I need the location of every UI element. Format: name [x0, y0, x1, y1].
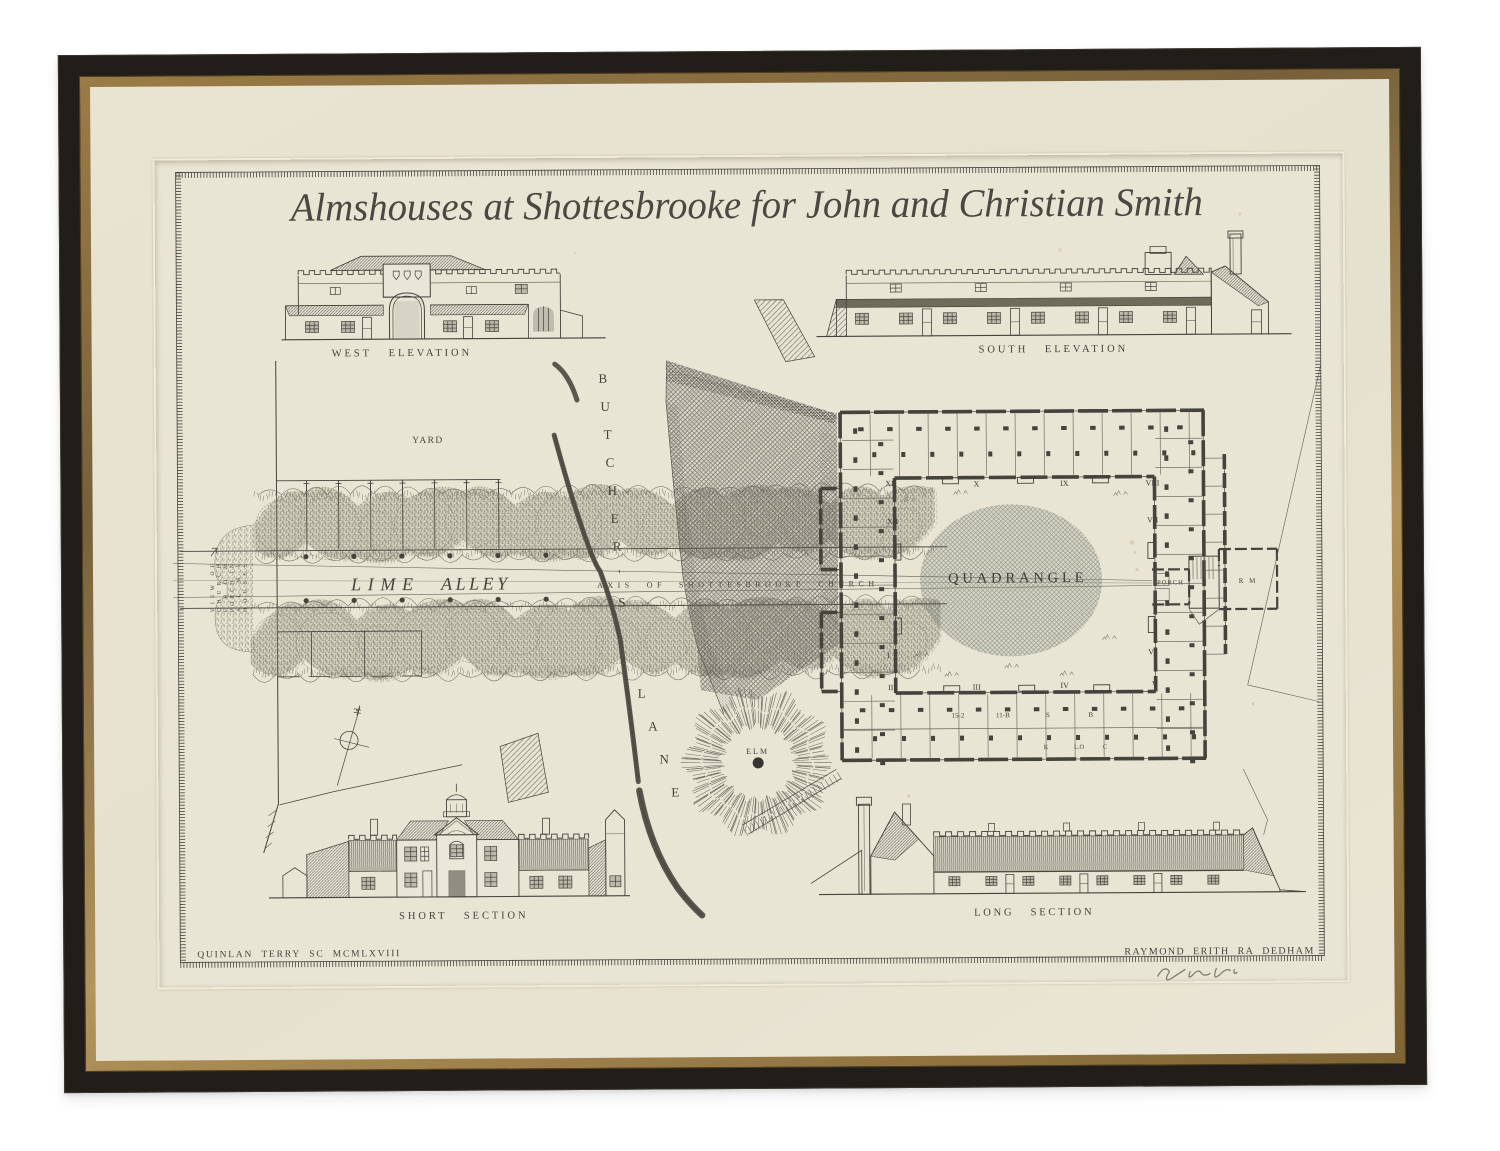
- svg-text:S: S: [618, 595, 625, 610]
- svg-text:IX: IX: [1060, 479, 1069, 488]
- svg-text:WEST ELEVATION: WEST ELEVATION: [332, 348, 474, 360]
- svg-text:ALLEY: ALLEY: [440, 573, 509, 593]
- svg-text:C: C: [1103, 744, 1107, 751]
- svg-text:': ': [618, 567, 620, 582]
- svg-text:ELM: ELM: [746, 747, 770, 756]
- svg-text:XI: XI: [885, 479, 894, 488]
- svg-text:L: L: [638, 686, 646, 701]
- svg-text:E: E: [671, 784, 679, 799]
- svg-text:H: H: [608, 483, 617, 498]
- svg-text:B: B: [598, 371, 607, 386]
- svg-text:LONG SECTION: LONG SECTION: [974, 907, 1096, 919]
- svg-text:III: III: [973, 683, 981, 692]
- svg-text:R M: R M: [1239, 577, 1258, 585]
- svg-text:11-B: 11-B: [996, 711, 1010, 719]
- svg-text:QUADRANGLE: QUADRANGLE: [948, 570, 1089, 587]
- svg-text:YARD: YARD: [412, 436, 448, 446]
- svg-text:PORCH: PORCH: [1157, 579, 1184, 586]
- svg-text:N: N: [659, 751, 669, 766]
- svg-text:15-2: 15-2: [951, 712, 964, 720]
- svg-text:T: T: [604, 427, 612, 442]
- svg-text:E: E: [611, 511, 619, 526]
- svg-text:L.O: L.O: [1074, 744, 1085, 751]
- svg-text:SHORT SECTION: SHORT SECTION: [399, 910, 530, 922]
- svg-text:I: I: [887, 651, 890, 660]
- svg-text:SOUTH ELEVATION: SOUTH ELEVATION: [979, 344, 1130, 356]
- svg-text:S: S: [1046, 711, 1050, 719]
- svg-text:C: C: [606, 455, 615, 470]
- svg-text:U: U: [600, 399, 610, 414]
- svg-text:A: A: [648, 719, 658, 734]
- svg-text:LIME: LIME: [350, 574, 413, 594]
- svg-text:II: II: [888, 683, 894, 692]
- svg-text:VI: VI: [1148, 647, 1157, 656]
- svg-text:Almshouses at Shottesbrooke fo: Almshouses at Shottesbrooke for John and…: [288, 179, 1203, 230]
- svg-text:R: R: [613, 539, 622, 554]
- svg-text:QUINLAN TERRY SC MCMLXVIII: QUINLAN TERRY SC MCMLXVIII: [197, 949, 402, 960]
- svg-text:VIII: VIII: [1146, 478, 1160, 487]
- svg-text:XII: XII: [887, 517, 898, 526]
- svg-text:K: K: [1044, 744, 1049, 751]
- svg-text:X: X: [974, 480, 980, 489]
- svg-text:IV: IV: [1060, 681, 1069, 690]
- svg-text:RAYMOND ERITH RA DEDHAM: RAYMOND ERITH RA DEDHAM: [1124, 946, 1316, 958]
- svg-text:B: B: [1089, 711, 1094, 719]
- svg-text:VII: VII: [1147, 515, 1158, 524]
- svg-text:V: V: [1152, 679, 1158, 688]
